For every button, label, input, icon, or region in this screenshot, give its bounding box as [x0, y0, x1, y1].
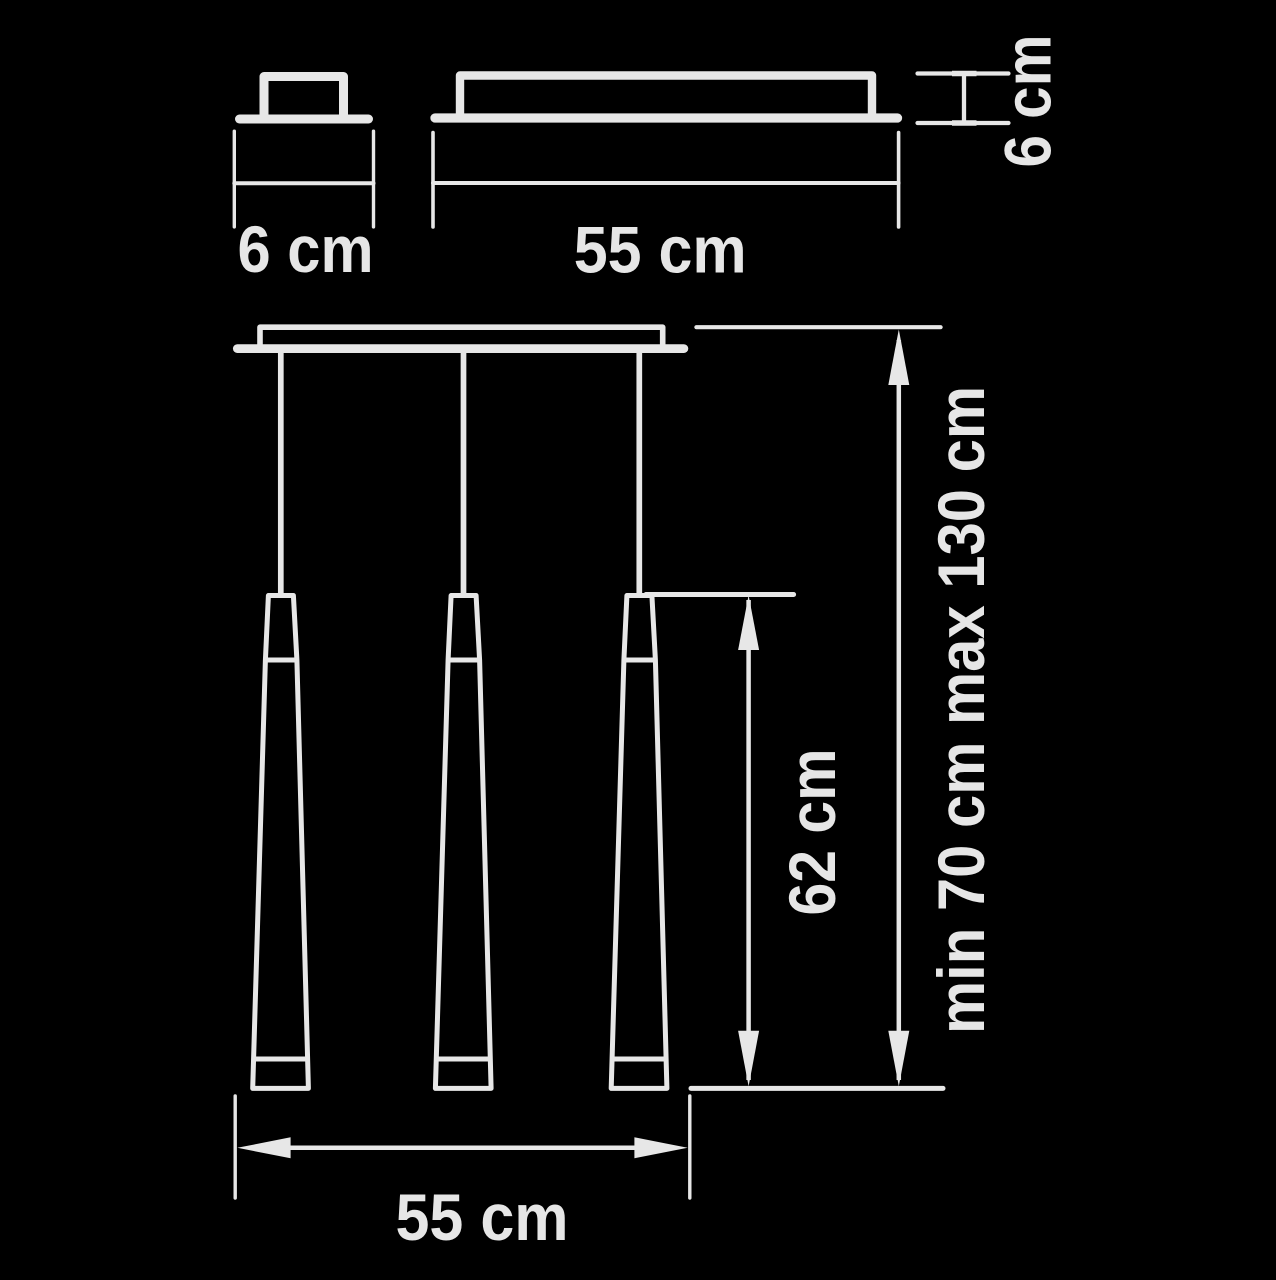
svg-text:min 70 cm max 130 cm: min 70 cm max 130 cm [924, 386, 998, 1034]
svg-text:6 cm: 6 cm [238, 212, 374, 286]
svg-text:62 cm: 62 cm [775, 749, 849, 916]
svg-text:55 cm: 55 cm [574, 213, 747, 287]
svg-text:6 cm: 6 cm [991, 35, 1065, 168]
svg-text:55 cm: 55 cm [396, 1180, 569, 1254]
